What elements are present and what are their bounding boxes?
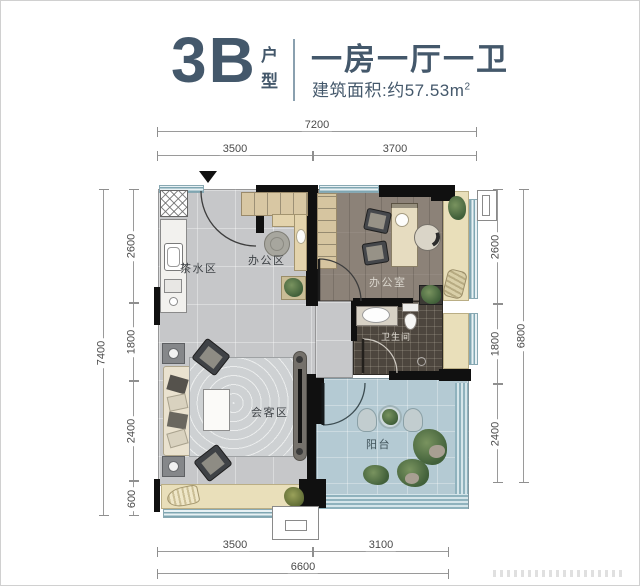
dim-label: 3500 — [220, 143, 250, 155]
ac-unit-bottom — [285, 520, 307, 531]
dim-right-seg1: 2600 — [497, 189, 498, 304]
dim-bottom-right: 3100 — [313, 551, 449, 552]
side-table-top-dish — [168, 348, 179, 359]
dim-label: 6800 — [516, 321, 528, 351]
dim-label: 600 — [126, 486, 138, 510]
dim-left-seg3: 2400 — [133, 381, 134, 481]
label-bathroom: 卫生间 — [381, 330, 411, 343]
dim-label: 3100 — [366, 539, 396, 551]
dim-right-total: 6800 — [523, 189, 524, 483]
dim-label: 2600 — [490, 231, 502, 261]
kitchen-sink-basin — [167, 247, 180, 267]
dim-right-seg3: 2400 — [497, 384, 498, 483]
wall-corner-bath-bay — [439, 369, 471, 381]
plant-nook — [284, 278, 303, 297]
floorplan-page: 3B 户型 一房一厅一卫 建筑面积:约57.53m2 7200 3500 370… — [0, 0, 640, 586]
balcony-chair-right — [403, 408, 423, 432]
unit-type-label: 户型 — [261, 43, 281, 95]
shaft-hatch-box — [160, 190, 188, 217]
balcony-chair-left — [357, 408, 377, 432]
wall-living-balcony — [307, 374, 316, 481]
plant-bottom-bay — [284, 487, 304, 507]
label-balcony: 阳台 — [366, 436, 391, 452]
dim-label: 1800 — [490, 329, 502, 359]
plant-office — [421, 285, 441, 304]
balcony-plant-small — [363, 465, 389, 485]
unit-code: 3B — [171, 25, 257, 95]
window-office-top — [319, 185, 379, 193]
dim-top-right: 3700 — [313, 155, 477, 156]
dim-label: 2400 — [126, 416, 138, 446]
dim-label: 3500 — [220, 539, 250, 551]
office-cabinet — [317, 193, 337, 269]
balcony-table-plant — [382, 409, 398, 425]
nook-chair-ring — [270, 237, 284, 251]
dim-bottom-left: 3500 — [157, 551, 313, 552]
area-sup: 2 — [464, 81, 470, 92]
tv-screen — [298, 369, 302, 443]
label-tea-area: 茶水区 — [180, 260, 218, 276]
ac-unit-right — [482, 195, 490, 216]
dim-top-total: 7200 — [157, 131, 477, 132]
dim-label: 2400 — [490, 418, 502, 448]
window-right-lower — [469, 313, 478, 365]
floor-drain — [417, 357, 426, 366]
layout-summary: 一房一厅一卫 — [311, 34, 509, 79]
area-value: 建筑面积:约57.53m — [312, 81, 464, 100]
dim-bottom-total: 6600 — [157, 573, 449, 574]
tv-console-screw-top — [296, 356, 303, 363]
office-armchair-2-cushion — [366, 245, 384, 261]
label-office-room: 办公室 — [369, 274, 407, 290]
tv-console-screw-bottom — [296, 448, 303, 455]
office-armchair-1-cushion — [368, 212, 387, 229]
window-bay-right-lower — [443, 313, 469, 369]
balcony-rail-right — [455, 383, 468, 501]
bath-sink — [362, 307, 390, 323]
dim-left-seg2: 1800 — [133, 303, 134, 381]
upper-cabinets — [241, 192, 308, 216]
coffee-table — [203, 389, 230, 431]
side-table-bottom-dish — [168, 461, 179, 472]
watermark — [493, 570, 625, 577]
dim-left-total: 7400 — [103, 189, 104, 516]
dim-label: 6600 — [288, 561, 318, 573]
nook-desk-plate — [296, 229, 306, 244]
header-divider — [293, 39, 295, 101]
floor-corridor — [316, 301, 353, 378]
office-desk-lamp — [395, 213, 409, 227]
label-office-area: 办公区 — [248, 252, 286, 268]
kitchen-knob — [169, 297, 178, 306]
dim-label: 7200 — [302, 119, 332, 131]
dim-left-seg1: 2600 — [133, 189, 134, 303]
dim-top-left: 3500 — [157, 155, 313, 156]
dim-label: 7400 — [96, 337, 108, 367]
office-desk-edge — [391, 203, 418, 208]
dim-label: 1800 — [126, 327, 138, 357]
label-meeting-area: 会客区 — [251, 404, 289, 420]
sofa-pillow-3 — [167, 411, 188, 429]
area-text: 建筑面积:约57.53m2 — [312, 76, 471, 101]
balcony-rail-bottom — [319, 494, 468, 509]
dim-label: 2600 — [126, 231, 138, 261]
wall-left-b — [154, 479, 160, 512]
kitchen-appliance — [164, 279, 182, 293]
entrance-arrow — [199, 171, 217, 183]
dim-label: 3700 — [380, 143, 410, 155]
dim-right-seg2: 1800 — [497, 304, 498, 384]
plant-bay-top — [448, 196, 466, 220]
dim-left-seg4: 600 — [133, 481, 134, 516]
wall-balcony-jamb — [316, 378, 324, 424]
toilet-tank — [402, 303, 419, 312]
